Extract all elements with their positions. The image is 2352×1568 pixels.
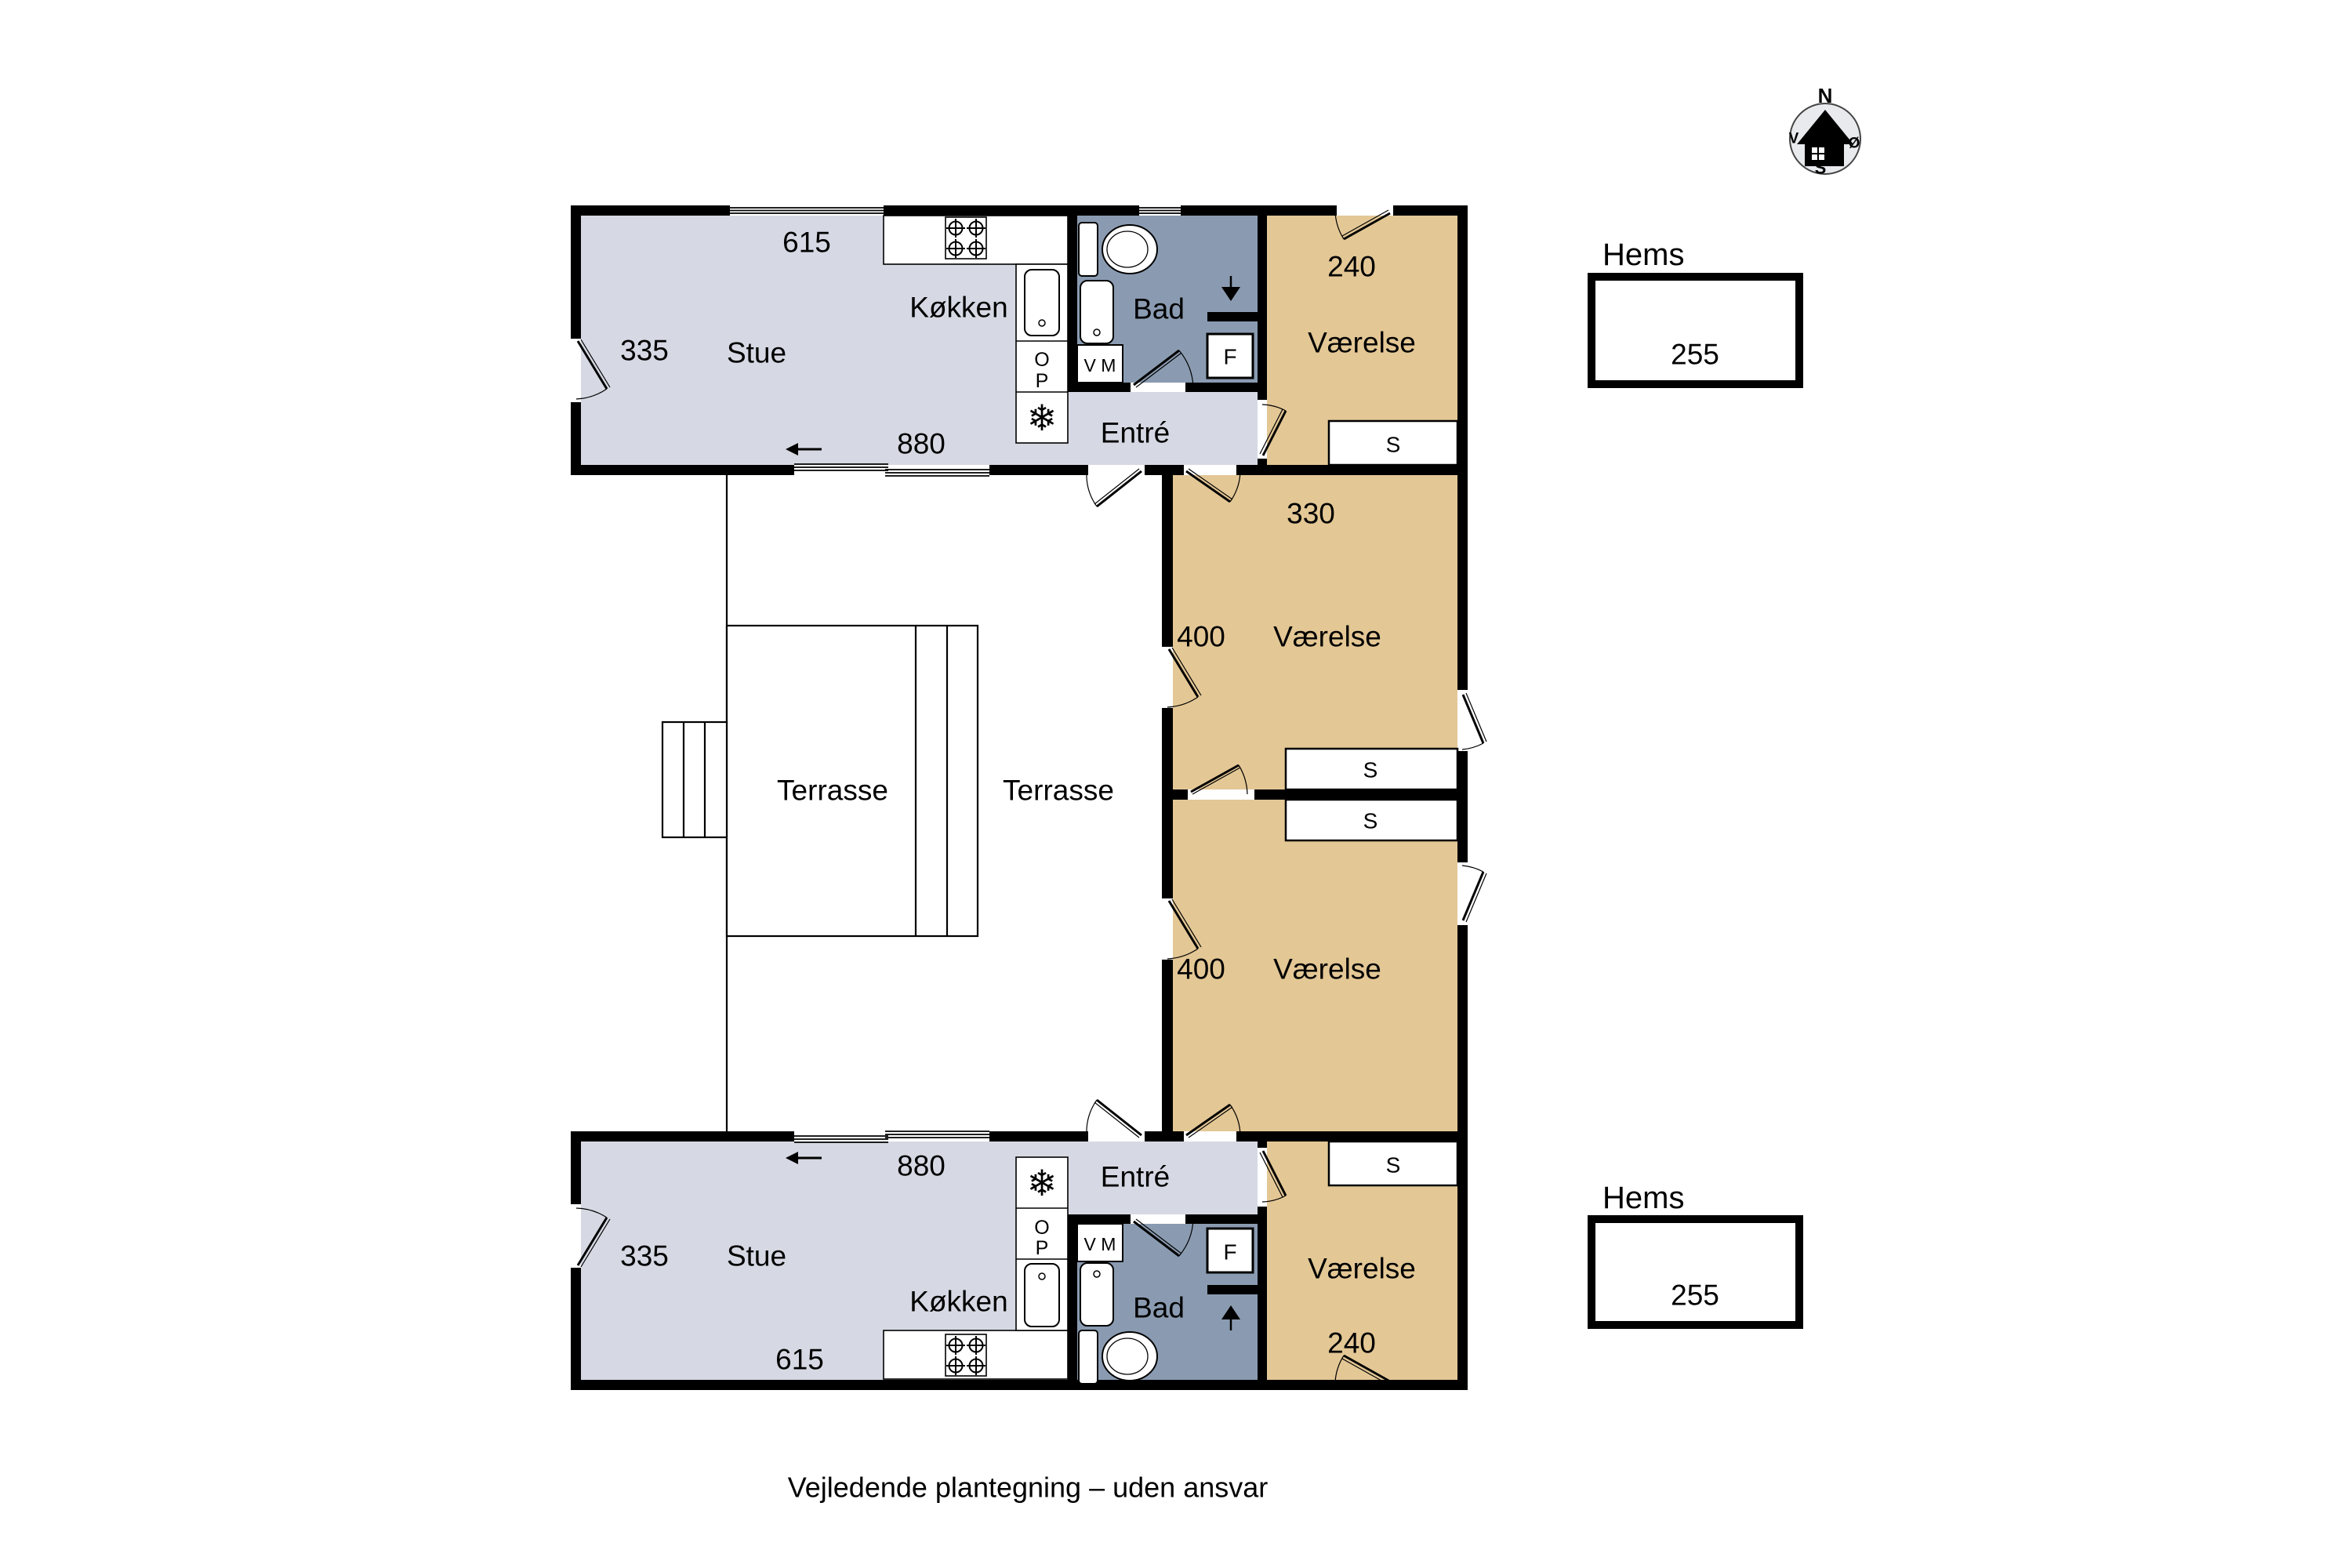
south-washer-label: V M xyxy=(1084,1234,1116,1254)
floor-plan-page: N S V Ø 615 Stue 335 Køkken Bad 240 Være… xyxy=(0,0,2352,1568)
shower-partition xyxy=(1207,312,1258,321)
south-oven-p: P xyxy=(1036,1237,1049,1259)
south-bedroom-label: Værelse xyxy=(1308,1253,1416,1285)
footer-disclaimer: Vejledende plantegning – uden ansvar xyxy=(788,1472,1269,1504)
north-patio-dim: 880 xyxy=(897,428,946,460)
hems-boxes xyxy=(1592,277,1799,1325)
south-bedroom-dim: 240 xyxy=(1327,1327,1376,1359)
south-fridge-label: F xyxy=(1223,1240,1236,1265)
middle-south-depth: 400 xyxy=(1177,953,1225,985)
stove-icon xyxy=(946,1334,986,1376)
middle-north-label: Værelse xyxy=(1273,621,1381,653)
compass-rose: N S V Ø xyxy=(1789,84,1860,178)
south-window-dim: 615 xyxy=(775,1344,824,1376)
north-bedroom-label: Værelse xyxy=(1308,327,1416,359)
north-oven-p: P xyxy=(1036,370,1049,392)
north-window-dim: 615 xyxy=(782,227,831,259)
south-living-label: Stue xyxy=(727,1240,786,1272)
north-kitchen-label: Køkken xyxy=(909,292,1007,324)
toilet-icon xyxy=(1079,223,1157,276)
hems-south-label: Hems xyxy=(1602,1181,1684,1215)
terrace-label-left: Terrasse xyxy=(777,775,888,807)
terrace-label-right: Terrasse xyxy=(1003,775,1114,807)
middle-north-depth: 400 xyxy=(1177,621,1225,653)
bath-sink-icon xyxy=(1080,281,1113,343)
middle-south-label: Værelse xyxy=(1273,953,1381,985)
north-oven-o: O xyxy=(1034,349,1049,371)
bath-sink-icon xyxy=(1080,1263,1113,1326)
south-freezer-icon: ❄ xyxy=(1027,1162,1058,1204)
toilet-icon xyxy=(1079,1330,1157,1384)
south-kitchen-label: Køkken xyxy=(909,1286,1007,1318)
compass-east-label: Ø xyxy=(1849,136,1860,152)
middle-north-wardrobe-label: S xyxy=(1363,758,1378,782)
stove-icon xyxy=(946,217,986,259)
south-patio-dim: 880 xyxy=(897,1150,946,1182)
kitchen-sink-icon xyxy=(1025,270,1059,336)
north-entry-label: Entré xyxy=(1101,417,1170,449)
shower-partition xyxy=(1207,1285,1258,1294)
compass-north-label: N xyxy=(1818,84,1833,107)
middle-north-east-door xyxy=(1462,693,1486,750)
north-freezer-icon: ❄ xyxy=(1027,397,1058,439)
south-entry-label: Entré xyxy=(1101,1161,1170,1193)
north-bath-label: Bad xyxy=(1133,293,1185,325)
middle-north-width: 330 xyxy=(1287,498,1335,530)
hems-north-label: Hems xyxy=(1602,238,1684,272)
north-living-label: Stue xyxy=(727,337,786,369)
south-living-dim: 335 xyxy=(620,1240,669,1272)
compass-west-label: V xyxy=(1789,131,1799,147)
middle-south-east-door xyxy=(1462,866,1486,922)
north-washer-label: V M xyxy=(1084,355,1116,376)
north-bedroom-dim: 240 xyxy=(1327,251,1376,283)
terrace-steps xyxy=(662,722,727,837)
kitchen-sink-icon xyxy=(1025,1264,1059,1327)
north-living-dim: 335 xyxy=(620,335,669,367)
north-wardrobe-label: S xyxy=(1386,433,1401,457)
south-wardrobe-label: S xyxy=(1386,1153,1401,1178)
hems-north-dim: 255 xyxy=(1671,339,1719,371)
middle-south-wardrobe-label: S xyxy=(1363,809,1378,833)
south-bath-label: Bad xyxy=(1133,1292,1185,1324)
hems-south-dim: 255 xyxy=(1671,1279,1719,1312)
south-oven-o: O xyxy=(1034,1217,1049,1239)
north-fridge-label: F xyxy=(1223,345,1236,369)
compass-south-label: S xyxy=(1815,158,1827,178)
floor-plan-drawing: N S V Ø 615 Stue 335 Køkken Bad 240 Være… xyxy=(0,0,2352,1568)
